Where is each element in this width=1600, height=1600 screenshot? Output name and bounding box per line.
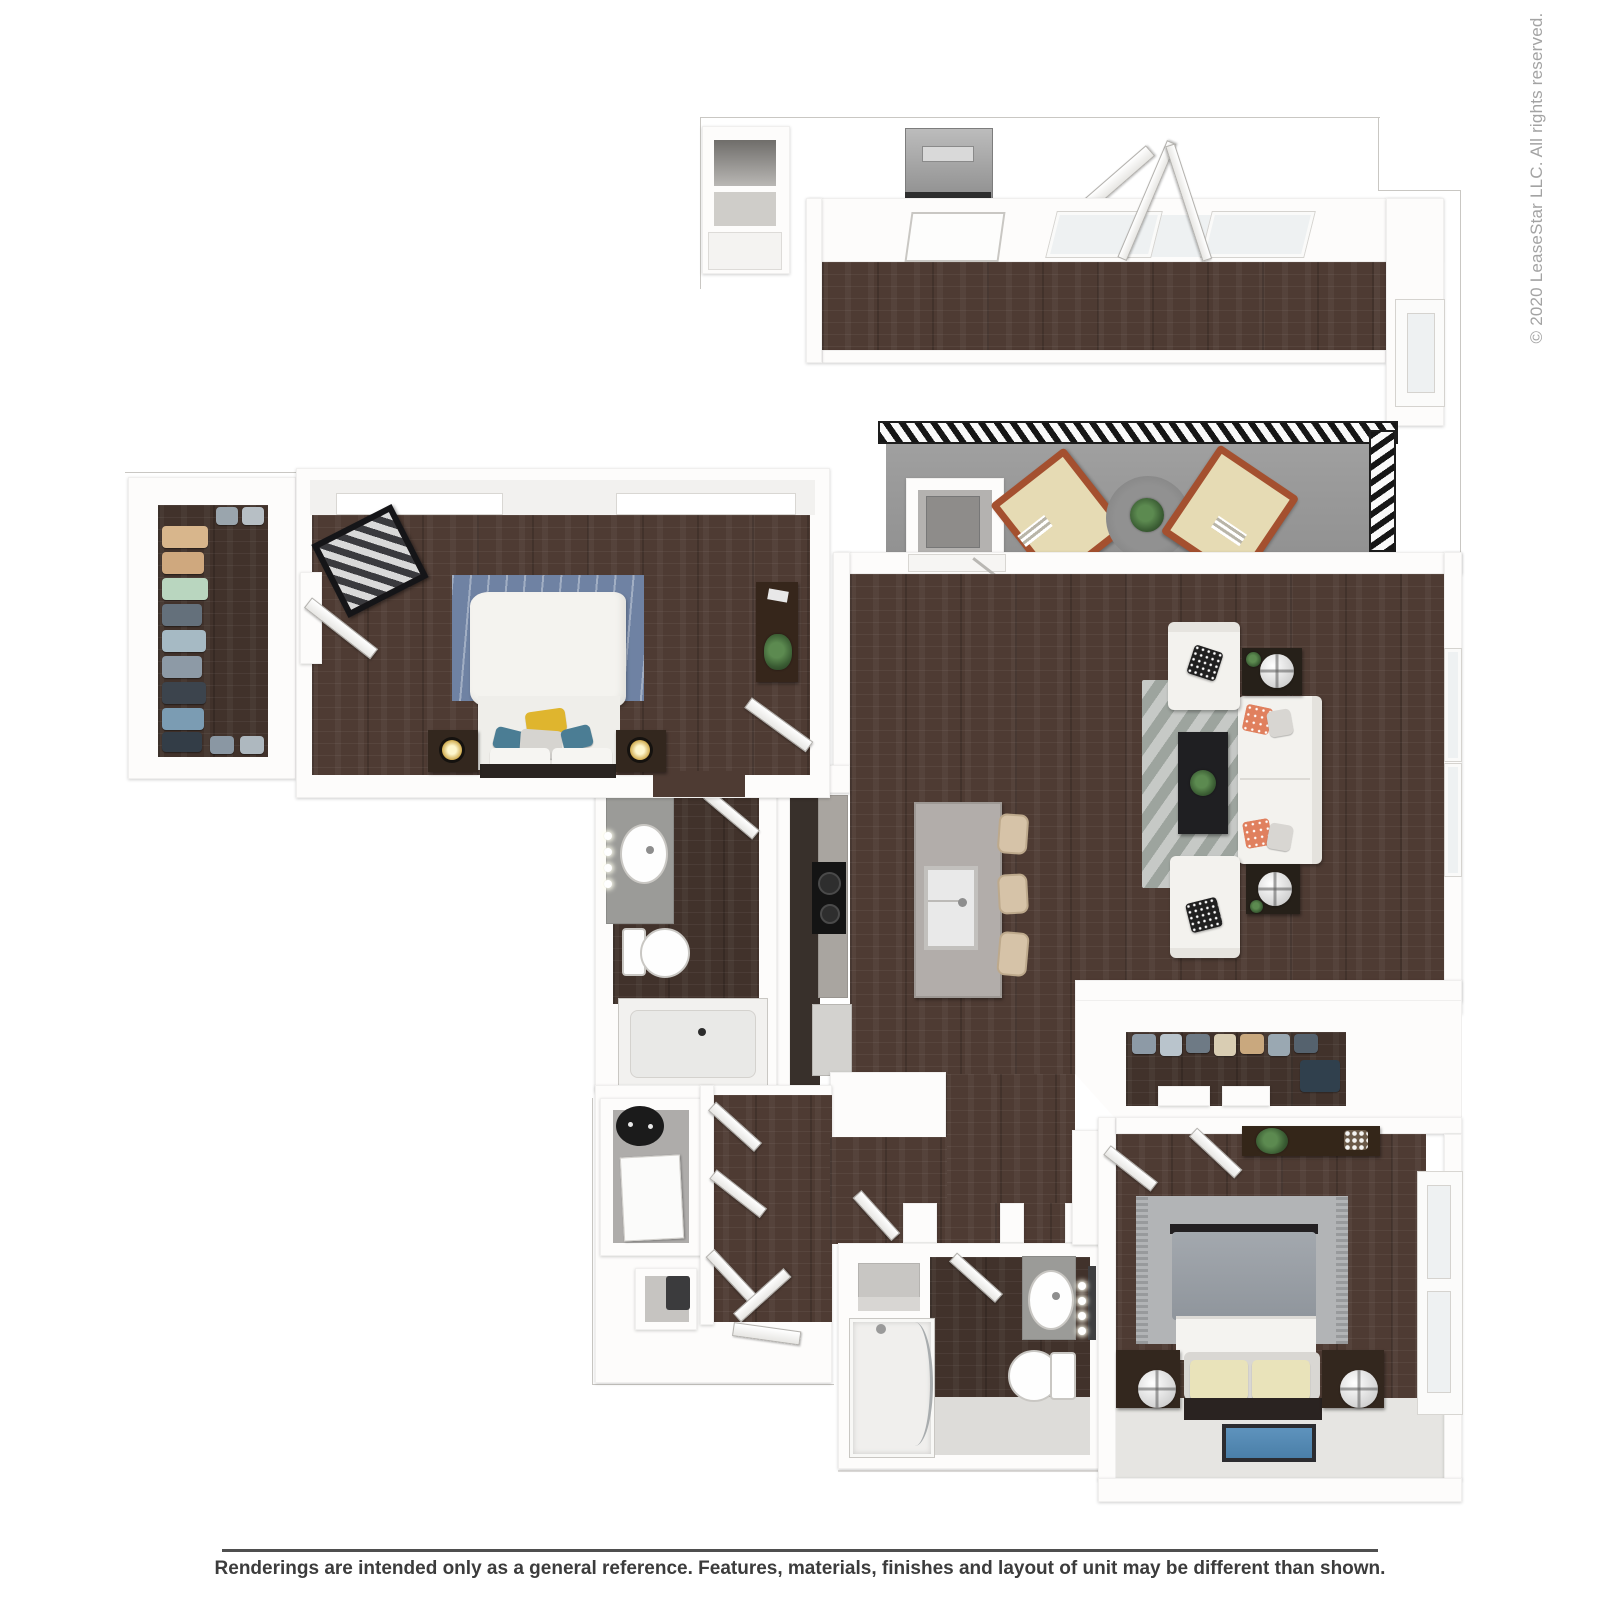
- dishwasher: [812, 1004, 852, 1076]
- bedroom2-left-wall: [1098, 1117, 1116, 1480]
- sofa-pillow-top-gray: [1266, 708, 1294, 738]
- corridor-door: [904, 212, 1005, 262]
- cooktop-burner-2: [820, 904, 840, 924]
- bathroom1-faucet: [646, 846, 654, 854]
- closet1-clothes-4: [162, 604, 202, 626]
- master-lamp-right: [630, 740, 650, 760]
- living-bottom-wall: [1075, 980, 1462, 1002]
- bedroom2-rug-fringe-right: [1336, 1196, 1348, 1344]
- sofa-pillow-bottom-gray: [1266, 822, 1294, 852]
- side-table-bottom-lamp: [1258, 872, 1292, 906]
- bathroom1-sink: [620, 824, 668, 884]
- living-left-wall: [833, 552, 850, 790]
- living-window-right-2: [1445, 764, 1461, 876]
- bathroom1-mirror-light-3: [604, 864, 612, 872]
- bar-stool-3: [996, 931, 1030, 977]
- bed2-pillow-left: [1190, 1360, 1248, 1400]
- sofa-seam: [1240, 778, 1310, 780]
- bedroom2-lamp-right: [1340, 1370, 1378, 1408]
- side-table-top-lamp: [1260, 654, 1294, 688]
- balcony-plant: [1130, 498, 1164, 532]
- master-lamp-left: [442, 740, 462, 760]
- corridor-bottom-wall: [822, 350, 1386, 363]
- bathroom1-mirror-light-1: [604, 832, 612, 840]
- bedroom2-dresser-plant: [1256, 1128, 1288, 1154]
- bathtub-basin: [630, 1010, 756, 1078]
- closet1-clothes-bottom-2: [240, 736, 264, 754]
- closet1-clothes-bottom-1: [210, 736, 234, 754]
- bathroom1-mirror-light-2: [604, 848, 612, 856]
- bar-stool-2: [997, 873, 1029, 915]
- linen-closet-item: [666, 1276, 690, 1310]
- closet1-clothes-7: [162, 682, 206, 704]
- bathroom2-mirror-light-3: [1078, 1312, 1086, 1320]
- closet2-clothes-2: [1160, 1034, 1182, 1056]
- closet2-clothes-7: [1294, 1034, 1318, 1053]
- coffee-table-plant: [1190, 770, 1216, 796]
- balcony-railing-right: [1369, 430, 1396, 552]
- closet2-clothes-pile: [1300, 1060, 1340, 1092]
- closet1-clothes-9: [162, 732, 202, 752]
- bedroom2-rug-fringe-left: [1136, 1196, 1148, 1344]
- hall-left-wall: [700, 1085, 714, 1325]
- bed2-duvet: [1172, 1232, 1316, 1320]
- closet1-clothes-3: [162, 578, 208, 600]
- washer-dot-2: [648, 1124, 653, 1129]
- hall-passage-floor: [945, 1074, 1075, 1204]
- shower-head: [876, 1324, 886, 1334]
- dryer: [620, 1154, 684, 1241]
- bathroom2-faucet: [1052, 1292, 1060, 1300]
- closet1-clothes-2: [162, 552, 204, 574]
- bedroom2-window-pane-2: [1428, 1292, 1450, 1392]
- hall-floor-right: [830, 1137, 947, 1204]
- bathroom1-toilet-bowl: [640, 928, 690, 978]
- bedroom2-bottom-wall: [1098, 1478, 1462, 1502]
- bed2-mat: [1222, 1424, 1316, 1462]
- bedroom2-lamp-left: [1138, 1370, 1176, 1408]
- bed2-pillow-right: [1252, 1360, 1310, 1400]
- washer: [616, 1106, 664, 1146]
- side-table-top-plant: [1246, 652, 1261, 667]
- closet2-shelf-stub-1: [1158, 1086, 1210, 1106]
- corridor-window-2: [1201, 212, 1314, 257]
- closet2-clothes-3: [1186, 1034, 1210, 1053]
- washer-dot-1: [628, 1122, 633, 1127]
- closet1-clothes-5: [162, 630, 206, 652]
- master-desk-plant: [764, 634, 792, 670]
- footer-divider-line: [222, 1549, 1378, 1552]
- closet1-clothes-6: [162, 656, 202, 678]
- bathtub-drain: [698, 1028, 706, 1036]
- bathroom1-mirror-light-4: [604, 880, 612, 888]
- outline-step-v: [1378, 117, 1379, 191]
- entry-bench-shelf: [714, 192, 776, 226]
- kitchen-peninsula: [830, 1072, 946, 1138]
- living-entry-door-frame: [908, 554, 1006, 572]
- bathroom2-toilet-tank: [1050, 1352, 1076, 1400]
- bathroom2-mirror: [1088, 1266, 1096, 1340]
- bar-stool-1: [997, 813, 1030, 855]
- closet2-clothes-1: [1132, 1034, 1156, 1054]
- copyright-text: © 2020 LeaseStar LLC. All rights reserve…: [1527, 13, 1547, 344]
- balcony-storage-box: [926, 496, 980, 548]
- bathroom2-niche: [858, 1263, 920, 1311]
- bathroom2-sink: [1028, 1270, 1074, 1330]
- bathroom2-mirror-light-2: [1078, 1297, 1086, 1305]
- water-heater: [905, 128, 993, 200]
- bedroom2-dresser-flowers: [1344, 1130, 1368, 1150]
- bed2-headboard: [1184, 1398, 1322, 1420]
- outline-left-block: [592, 1098, 593, 1385]
- bedroom2-window-pane-1: [1428, 1186, 1450, 1278]
- closet2-clothes-6: [1268, 1034, 1290, 1056]
- side-table-bottom-plant: [1250, 900, 1263, 913]
- outline-left-block-bottom: [592, 1384, 834, 1385]
- bathroom2-mirror-light-1: [1078, 1282, 1086, 1290]
- island-sink: [924, 866, 978, 950]
- hall-stub-wall-2: [1000, 1203, 1024, 1243]
- bumpout-window-pane: [1408, 314, 1434, 392]
- balcony-railing-top: [878, 421, 1398, 444]
- bedroom2-left-upper-wall: [1072, 1130, 1100, 1245]
- water-heater-panel: [922, 146, 974, 162]
- living-window-right-1: [1445, 649, 1461, 761]
- bathroom2-mirror-light-4: [1078, 1327, 1086, 1335]
- master-doorway-notch: [653, 771, 745, 797]
- entry-bench-cubby: [714, 140, 776, 186]
- island-faucet: [958, 898, 967, 907]
- corridor-left-wall: [806, 198, 822, 363]
- closet1-clothes-top-2: [242, 507, 264, 525]
- closet2-clothes-4: [1214, 1034, 1236, 1056]
- disclaimer-text: Renderings are intended only as a genera…: [0, 1558, 1600, 1580]
- master-window-sill-1: [337, 494, 502, 514]
- closet1-clothes-top-1: [216, 507, 238, 525]
- hall-stub-wall-1: [903, 1203, 937, 1243]
- closet2-shelf-stub-2: [1222, 1086, 1270, 1106]
- closet2-clothes-5: [1240, 1034, 1264, 1054]
- outline-step-h: [1378, 190, 1460, 191]
- closet1-clothes-8: [162, 708, 204, 730]
- outline-bath2-bottom: [838, 1470, 1102, 1472]
- entry-bench-seat: [708, 232, 782, 270]
- floor-plan-canvas: Renderings are intended only as a genera…: [0, 0, 1600, 1600]
- outline-top: [700, 117, 1380, 118]
- cooktop-burner-1: [818, 872, 841, 895]
- master-bed-headboard: [480, 764, 616, 778]
- closet1-clothes-1: [162, 526, 208, 548]
- master-bed-duvet: [470, 592, 626, 708]
- outline-left: [700, 117, 701, 289]
- master-window-sill-2: [617, 494, 795, 514]
- corridor-floor: [822, 262, 1386, 350]
